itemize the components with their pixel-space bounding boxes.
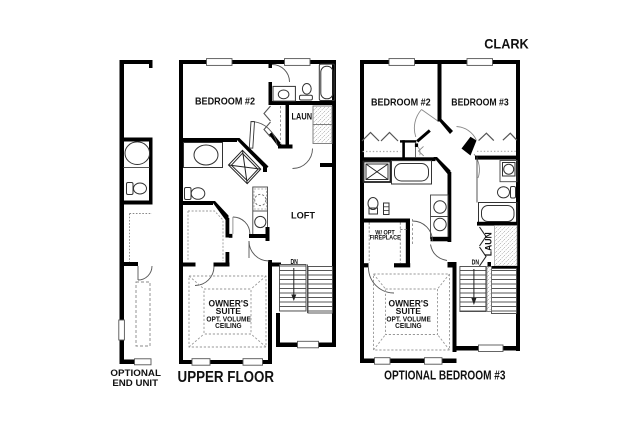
- svg-text:END UNIT: END UNIT: [112, 378, 158, 388]
- svg-text:CEILING: CEILING: [395, 323, 422, 330]
- svg-text:CLARK: CLARK: [484, 37, 529, 52]
- svg-text:DN: DN: [290, 259, 298, 266]
- svg-text:BEDROOM #2: BEDROOM #2: [195, 97, 255, 108]
- svg-text:UPPER FLOOR: UPPER FLOOR: [178, 369, 275, 386]
- svg-text:BEDROOM #3: BEDROOM #3: [451, 98, 509, 109]
- svg-text:SUITE: SUITE: [396, 306, 422, 316]
- svg-text:LAUN: LAUN: [484, 232, 495, 256]
- svg-text:DN: DN: [472, 260, 480, 267]
- svg-text:LOFT: LOFT: [291, 210, 315, 221]
- svg-text:OPTIONAL BEDROOM #3: OPTIONAL BEDROOM #3: [384, 368, 505, 382]
- svg-text:SUITE: SUITE: [216, 306, 242, 316]
- svg-text:OPTIONAL: OPTIONAL: [110, 368, 161, 378]
- svg-text:CEILING: CEILING: [215, 323, 242, 330]
- svg-text:LAUN: LAUN: [292, 112, 313, 122]
- svg-text:BEDROOM #2: BEDROOM #2: [371, 98, 431, 109]
- svg-text:FIREPLACE: FIREPLACE: [370, 235, 402, 242]
